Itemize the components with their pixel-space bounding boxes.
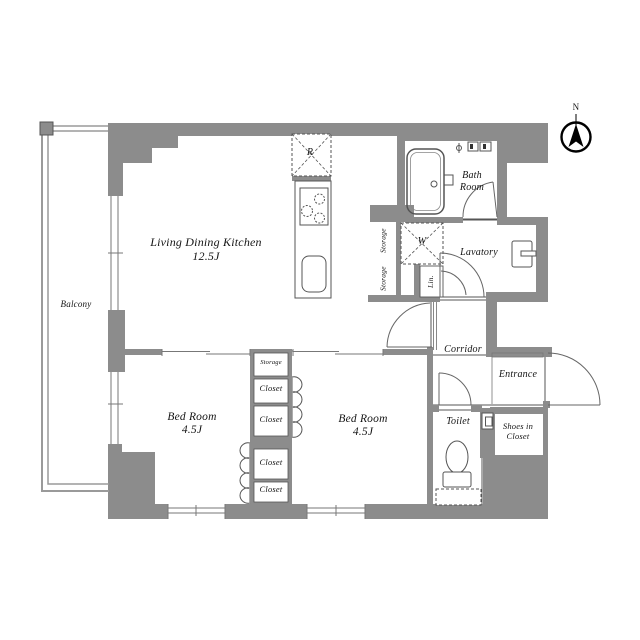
linen-label: Lin.	[421, 267, 442, 296]
basin-faucet	[521, 251, 536, 256]
bath-room-label: Bath Room	[448, 170, 496, 193]
burner	[302, 206, 313, 217]
column-closet1-label: Closet	[254, 384, 288, 394]
entrance-door	[548, 353, 600, 405]
corridor-label: Corridor	[434, 344, 492, 356]
washing-machine-label: W	[408, 236, 436, 248]
balcony-label: Balcony	[44, 299, 108, 309]
ldk-name: Living Dining Kitchen	[120, 236, 292, 250]
north-label: N	[568, 102, 584, 112]
ldk-size: 12.5J	[120, 250, 292, 264]
toilet-tank	[443, 472, 471, 487]
shoes-in-closet-label: Shoes in Closet	[490, 422, 546, 442]
burner	[315, 213, 325, 223]
bedroom-west-label: Bed Room 4.5J	[147, 411, 237, 437]
column-storage-label: Storage	[254, 359, 288, 366]
balcony-post	[40, 122, 53, 135]
floor-plan: Living Dining Kitchen 12.5J Balcony Bath…	[0, 0, 640, 640]
toilet-pipe-space	[436, 489, 481, 505]
column-closet2-label: Closet	[254, 415, 288, 425]
north-compass-icon	[562, 114, 591, 152]
column-closet4-label: Closet	[254, 485, 288, 495]
kitchen-storage-lower-label: Storage	[372, 260, 396, 297]
kitchen-fixtures	[292, 134, 331, 298]
column-closet3-label: Closet	[254, 458, 288, 468]
ldk-label: Living Dining Kitchen 12.5J	[120, 236, 292, 264]
floor-plan-drawing	[0, 0, 640, 640]
toilet-bowl	[446, 441, 468, 473]
refrigerator-label: R	[297, 147, 323, 159]
entrance-label: Entrance	[490, 369, 546, 381]
lavatory-label: Lavatory	[448, 247, 510, 259]
bedroom-east-label: Bed Room 4.5J	[318, 413, 408, 439]
sink	[302, 256, 326, 292]
burner	[315, 194, 325, 204]
toilet-label: Toilet	[434, 416, 482, 428]
kitchen-storage-upper-label: Storage	[372, 223, 396, 259]
